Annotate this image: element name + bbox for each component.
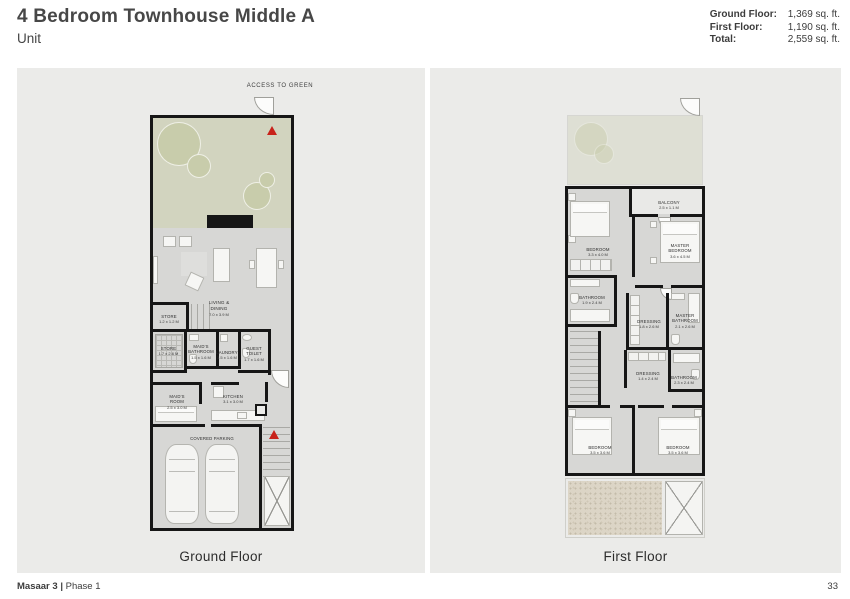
dining-chair: [278, 260, 284, 269]
wall: [153, 370, 187, 373]
footer-separator: |: [60, 581, 63, 592]
armchair: [179, 236, 192, 247]
dining-chair: [249, 260, 255, 269]
tv-unit: [153, 256, 158, 284]
wall: [153, 382, 201, 385]
wall: [259, 424, 262, 528]
room-label-master-bedroom: MASTER BEDROOM 3.6 x 4.5 M: [658, 237, 702, 265]
stat-value-total: 2,559 sq. ft.: [788, 34, 840, 45]
wall: [632, 405, 635, 473]
room-name: DRESSING: [637, 319, 661, 324]
room-dim: 3.5 x 3.6 M: [658, 450, 698, 455]
room-label-balcony: BALCONY 2.5 x 1.1 M: [644, 194, 694, 216]
wall: [211, 424, 261, 427]
page-number: 33: [827, 581, 838, 592]
room-label-dressing-1: DRESSING 1.8 x 2.6 M: [632, 313, 666, 335]
stat-label-ground: Ground Floor:: [710, 9, 788, 20]
nightstand: [568, 193, 576, 201]
wall: [568, 405, 610, 408]
ground-floor-caption: Ground Floor: [17, 549, 425, 564]
void-x-box: [665, 481, 703, 535]
first-floor-panel: BALCONY 2.5 x 1.1 M BEDROOM 3.3 x 4.0 M …: [430, 68, 841, 573]
room-dim: 1.5 x 1.6 M: [186, 355, 216, 360]
first-floor-caption: First Floor: [430, 549, 841, 564]
entry-door-arc: [680, 98, 700, 116]
first-floor-plan: BALCONY 2.5 x 1.1 M BEDROOM 3.3 x 4.0 M …: [565, 186, 705, 476]
toilet: [671, 334, 680, 345]
stat-value-first: 1,190 sq. ft.: [788, 22, 840, 33]
stat-label-total: Total:: [710, 34, 788, 45]
room-dim: 3.5 x 3.6 M: [580, 450, 620, 455]
stairs-first: [570, 331, 598, 403]
page-title: 4 Bedroom Townhouse Middle A: [17, 6, 315, 28]
access-to-green-label: ACCESS TO GREEN: [195, 83, 365, 89]
room-name: BEDROOM: [588, 445, 611, 450]
wall: [568, 275, 617, 278]
wall: [184, 366, 241, 369]
room-dim: 1.7 x 1.6 M: [240, 357, 268, 362]
room-name: LAUNDRY: [216, 350, 238, 355]
room-dim: 3.1 x 3.0 M: [213, 399, 253, 404]
room-name: MAID'S ROOM: [169, 394, 184, 405]
entry-arrow-icon: [267, 126, 277, 135]
wall: [635, 285, 663, 288]
wall: [153, 302, 189, 305]
brochure-page: 4 Bedroom Townhouse Middle A Unit Ground…: [0, 0, 850, 599]
stat-label-first: First Floor:: [710, 22, 788, 33]
room-dim: 2.5 x 1.1 M: [644, 205, 694, 210]
wall: [199, 382, 202, 404]
wall: [629, 189, 632, 217]
vanity-sink: [671, 293, 685, 300]
washing-machine: [220, 334, 228, 342]
wall: [624, 350, 627, 388]
room-name: MASTER BATHROOM: [672, 313, 698, 324]
room-label-dressing-2: DRESSING 1.4 x 2.4 M: [630, 365, 666, 387]
room-label-bedroom-3: BEDROOM 3.5 x 3.6 M: [658, 439, 698, 461]
shaft: [255, 404, 267, 416]
void-x-box: [264, 476, 290, 526]
footer-project-name: Masaar 3: [17, 581, 58, 592]
tree-icon: [259, 172, 275, 188]
entry-arrow-icon: [269, 430, 279, 439]
room-dim: 7.0 x 3.9 M: [187, 312, 251, 317]
footer-phase: Phase 1: [66, 581, 101, 592]
wall: [666, 347, 702, 350]
room-name: STORE: [161, 346, 176, 351]
room-name: STORE: [161, 314, 176, 319]
room-label-bathroom-1: BATHROOM 1.9 x 2.4 M: [574, 289, 610, 311]
garden-ghost: [567, 115, 703, 185]
planter-wall: [207, 215, 253, 228]
wall: [153, 424, 205, 427]
nightstand: [568, 409, 576, 417]
bathtub: [570, 309, 610, 322]
room-name: MASTER BEDROOM: [668, 243, 691, 254]
nightstand: [650, 257, 657, 264]
nightstand: [694, 409, 702, 417]
vanity-sink: [570, 279, 600, 287]
room-name: DRESSING: [636, 371, 660, 376]
car: [165, 444, 199, 524]
car: [205, 444, 239, 524]
room-name: BATHROOM: [579, 295, 605, 300]
room-dim: 1.8 x 2.6 M: [632, 324, 666, 329]
door-arc: [271, 370, 289, 388]
sofa: [213, 248, 230, 282]
wall: [238, 370, 271, 373]
wall: [626, 347, 669, 350]
room-label-bedroom-2: BEDROOM 3.5 x 3.6 M: [580, 439, 620, 461]
footer-project: Masaar 3 | Phase 1: [17, 581, 101, 592]
room-dim: 1.9 x 2.4 M: [574, 300, 610, 305]
room-dim: 1.7 x 2.6 M: [153, 351, 184, 356]
entry-door-arc: [254, 97, 274, 115]
room-label-living: LIVING & DINING 7.0 x 3.9 M: [187, 294, 251, 323]
room-name: KITCHEN: [223, 394, 243, 399]
room-name: LIVING & DINING: [209, 300, 230, 311]
room-label-master-bathroom: MASTER BATHROOM 2.1 x 2.6 M: [668, 307, 702, 335]
room-label-maids-room: MAID'S ROOM 2.5 x 3.0 M: [159, 388, 195, 416]
room-dim: 1.5 x 1.6 M: [216, 355, 238, 360]
wall: [211, 382, 239, 385]
room-label-kitchen: KITCHEN 3.1 x 3.0 M: [213, 388, 253, 410]
room-dim: 1.4 x 2.4 M: [630, 376, 666, 381]
dining-table: [256, 248, 277, 288]
kitchen-sink: [237, 412, 247, 419]
pergola-texture: [568, 481, 662, 535]
shower: [673, 353, 700, 363]
wall: [671, 285, 702, 288]
room-label-laundry: LAUNDRY 1.5 x 1.6 M: [216, 344, 238, 366]
room-name: GUEST TOILET: [246, 346, 262, 357]
room-dim: 2.3 x 2.4 M: [669, 380, 699, 385]
room-name: BEDROOM: [666, 445, 689, 450]
wall: [598, 331, 601, 405]
room-label-bedroom-1: BEDROOM 3.3 x 4.0 M: [576, 241, 620, 263]
tree-icon: [187, 154, 211, 178]
room-dim: 3.6 x 4.5 M: [658, 254, 702, 259]
wall: [265, 382, 268, 402]
stat-value-ground: 1,369 sq. ft.: [788, 9, 840, 20]
room-label-guest-toilet: GUEST TOILET 1.7 x 1.6 M: [240, 340, 268, 368]
page-subtitle: Unit: [17, 31, 41, 46]
room-label-store: STORE 1.7 x 2.6 M: [153, 340, 184, 362]
wall: [268, 332, 271, 375]
room-label-store-upper: STORE 1.2 x 1.2 M: [153, 308, 185, 330]
wall: [568, 324, 617, 327]
tree-icon: [594, 144, 614, 164]
wall: [632, 217, 635, 277]
room-name: BATHROOM: [671, 375, 697, 380]
room-name: COVERED PARKING: [190, 436, 234, 441]
room-dim: 2.5 x 3.0 M: [159, 405, 195, 410]
wall: [672, 405, 702, 408]
nightstand: [650, 221, 657, 228]
room-label-parking: COVERED PARKING: [177, 430, 247, 447]
room-dim: 2.1 x 2.6 M: [668, 324, 702, 329]
wardrobe: [628, 352, 666, 361]
room-dim: 1.2 x 1.2 M: [153, 319, 185, 324]
wall: [614, 275, 617, 327]
roof-strip: [565, 478, 705, 538]
room-label-bathroom-2: BATHROOM 2.3 x 2.4 M: [669, 369, 699, 391]
armchair: [163, 236, 176, 247]
wall: [638, 405, 664, 408]
ground-floor-plan: LIVING & DINING 7.0 x 3.9 M STORE 1.2 x …: [150, 115, 294, 531]
wall: [626, 293, 629, 349]
room-name: BEDROOM: [586, 247, 609, 252]
room-name: BALCONY: [658, 200, 680, 205]
ground-floor-panel: ACCESS TO GREEN LIVING &: [17, 68, 425, 573]
area-stats: Ground Floor: 1,369 sq. ft. First Floor:…: [710, 9, 840, 45]
room-name: MAID'S BATHROOM: [188, 344, 214, 355]
bed: [570, 201, 610, 237]
room-label-maids-bathroom: MAID'S BATHROOM 1.5 x 1.6 M: [186, 338, 216, 366]
room-dim: 3.3 x 4.0 M: [576, 252, 620, 257]
